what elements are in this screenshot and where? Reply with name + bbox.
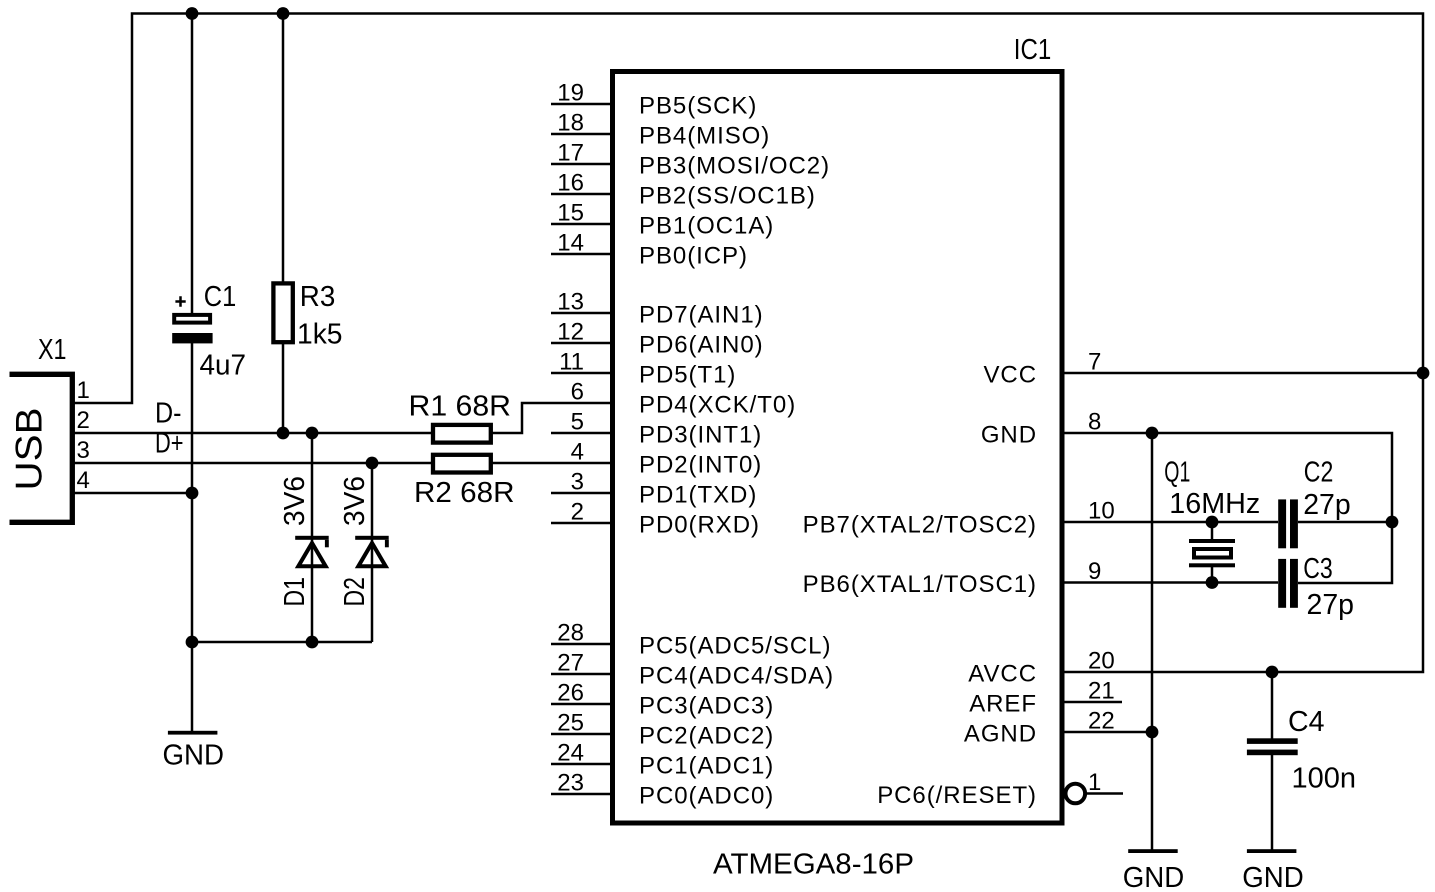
svg-text:3V6: 3V6 bbox=[339, 476, 371, 526]
svg-text:X1: X1 bbox=[38, 334, 67, 366]
svg-text:ATMEGA8-16P: ATMEGA8-16P bbox=[713, 848, 914, 880]
svg-text:D1: D1 bbox=[279, 577, 311, 607]
svg-text:PC5(ADC5/SCL): PC5(ADC5/SCL) bbox=[639, 633, 831, 660]
svg-text:23: 23 bbox=[557, 770, 584, 797]
svg-text:D+: D+ bbox=[155, 428, 184, 460]
svg-text:PB4(MISO): PB4(MISO) bbox=[639, 123, 770, 150]
svg-text:USB: USB bbox=[9, 408, 50, 491]
svg-text:19: 19 bbox=[557, 80, 584, 107]
svg-text:GND: GND bbox=[981, 422, 1037, 449]
svg-text:3: 3 bbox=[77, 437, 90, 464]
svg-text:6: 6 bbox=[571, 379, 584, 406]
svg-text:R1 68R: R1 68R bbox=[409, 390, 512, 422]
svg-text:1: 1 bbox=[77, 377, 90, 404]
svg-text:1: 1 bbox=[1088, 769, 1101, 796]
svg-text:17: 17 bbox=[557, 140, 584, 167]
svg-text:14: 14 bbox=[557, 230, 584, 257]
svg-text:PD7(AIN1): PD7(AIN1) bbox=[639, 302, 764, 329]
svg-text:4: 4 bbox=[571, 439, 584, 466]
svg-text:PD0(RXD): PD0(RXD) bbox=[639, 512, 760, 539]
svg-text:AREF: AREF bbox=[969, 691, 1037, 718]
svg-text:20: 20 bbox=[1088, 648, 1115, 675]
svg-text:Q1: Q1 bbox=[1164, 457, 1190, 489]
svg-text:13: 13 bbox=[557, 289, 584, 316]
svg-text:16MHz: 16MHz bbox=[1169, 488, 1260, 520]
svg-text:GND: GND bbox=[1123, 862, 1185, 892]
svg-text:PD6(AIN0): PD6(AIN0) bbox=[639, 332, 764, 359]
svg-text:PD2(INT0): PD2(INT0) bbox=[639, 452, 762, 479]
svg-text:VCC: VCC bbox=[983, 362, 1037, 389]
svg-text:PD5(T1): PD5(T1) bbox=[639, 362, 736, 389]
svg-text:PB5(SCK): PB5(SCK) bbox=[639, 93, 757, 120]
svg-text:2: 2 bbox=[77, 407, 90, 434]
svg-text:16: 16 bbox=[557, 170, 584, 197]
svg-text:C3: C3 bbox=[1303, 553, 1333, 585]
svg-text:PC0(ADC0): PC0(ADC0) bbox=[639, 783, 774, 810]
svg-text:2: 2 bbox=[571, 499, 584, 526]
svg-text:PB7(XTAL2/TOSC2): PB7(XTAL2/TOSC2) bbox=[803, 512, 1037, 539]
svg-text:3: 3 bbox=[571, 469, 584, 496]
svg-text:PB2(SS/OC1B): PB2(SS/OC1B) bbox=[639, 183, 816, 210]
svg-text:27p: 27p bbox=[1307, 589, 1355, 621]
svg-text:24: 24 bbox=[557, 740, 584, 767]
svg-text:AGND: AGND bbox=[964, 721, 1037, 748]
svg-text:AVCC: AVCC bbox=[968, 661, 1037, 688]
svg-text:1k5: 1k5 bbox=[297, 319, 343, 351]
svg-text:4u7: 4u7 bbox=[200, 350, 247, 382]
svg-text:8: 8 bbox=[1088, 409, 1101, 436]
svg-text:4: 4 bbox=[77, 467, 90, 494]
svg-text:18: 18 bbox=[557, 110, 584, 137]
svg-text:10: 10 bbox=[1088, 498, 1115, 525]
svg-text:100n: 100n bbox=[1292, 763, 1357, 795]
svg-text:PB0(ICP): PB0(ICP) bbox=[639, 243, 748, 270]
svg-text:5: 5 bbox=[571, 409, 584, 436]
svg-text:15: 15 bbox=[557, 200, 584, 227]
svg-text:11: 11 bbox=[559, 349, 584, 376]
svg-text:R3: R3 bbox=[300, 281, 336, 313]
svg-text:PD4(XCK/T0): PD4(XCK/T0) bbox=[639, 392, 796, 419]
svg-text:C1: C1 bbox=[204, 281, 237, 313]
svg-text:PC1(ADC1): PC1(ADC1) bbox=[639, 753, 774, 780]
svg-text:9: 9 bbox=[1088, 558, 1101, 585]
svg-text:PB1(OC1A): PB1(OC1A) bbox=[639, 213, 774, 240]
svg-text:7: 7 bbox=[1088, 349, 1101, 376]
svg-text:27: 27 bbox=[557, 650, 584, 677]
svg-text:GND: GND bbox=[1242, 862, 1304, 892]
svg-text:R2 68R: R2 68R bbox=[414, 477, 515, 509]
svg-text:22: 22 bbox=[1088, 708, 1115, 735]
svg-text:21: 21 bbox=[1088, 678, 1115, 705]
svg-text:IC1: IC1 bbox=[1014, 34, 1052, 66]
svg-text:PD1(TXD): PD1(TXD) bbox=[639, 482, 757, 509]
svg-text:PB3(MOSI/OC2): PB3(MOSI/OC2) bbox=[639, 153, 830, 180]
svg-text:PC4(ADC4/SDA): PC4(ADC4/SDA) bbox=[639, 663, 834, 690]
svg-text:26: 26 bbox=[557, 680, 584, 707]
svg-text:27p: 27p bbox=[1303, 489, 1351, 521]
svg-text:PB6(XTAL1/TOSC1): PB6(XTAL1/TOSC1) bbox=[803, 571, 1037, 598]
svg-text:PD3(INT1): PD3(INT1) bbox=[639, 422, 762, 449]
svg-text:D2: D2 bbox=[339, 577, 371, 607]
svg-text:D-: D- bbox=[155, 398, 182, 430]
svg-text:12: 12 bbox=[557, 319, 584, 346]
svg-text:28: 28 bbox=[557, 620, 584, 647]
svg-text:GND: GND bbox=[163, 740, 225, 772]
svg-text:PC6(/RESET): PC6(/RESET) bbox=[877, 782, 1037, 809]
svg-text:3V6: 3V6 bbox=[279, 476, 311, 526]
svg-text:25: 25 bbox=[557, 710, 584, 737]
svg-text:PC3(ADC3): PC3(ADC3) bbox=[639, 693, 774, 720]
svg-text:PC2(ADC2): PC2(ADC2) bbox=[639, 723, 774, 750]
svg-text:C2: C2 bbox=[1304, 457, 1334, 489]
svg-text:C4: C4 bbox=[1288, 706, 1325, 738]
